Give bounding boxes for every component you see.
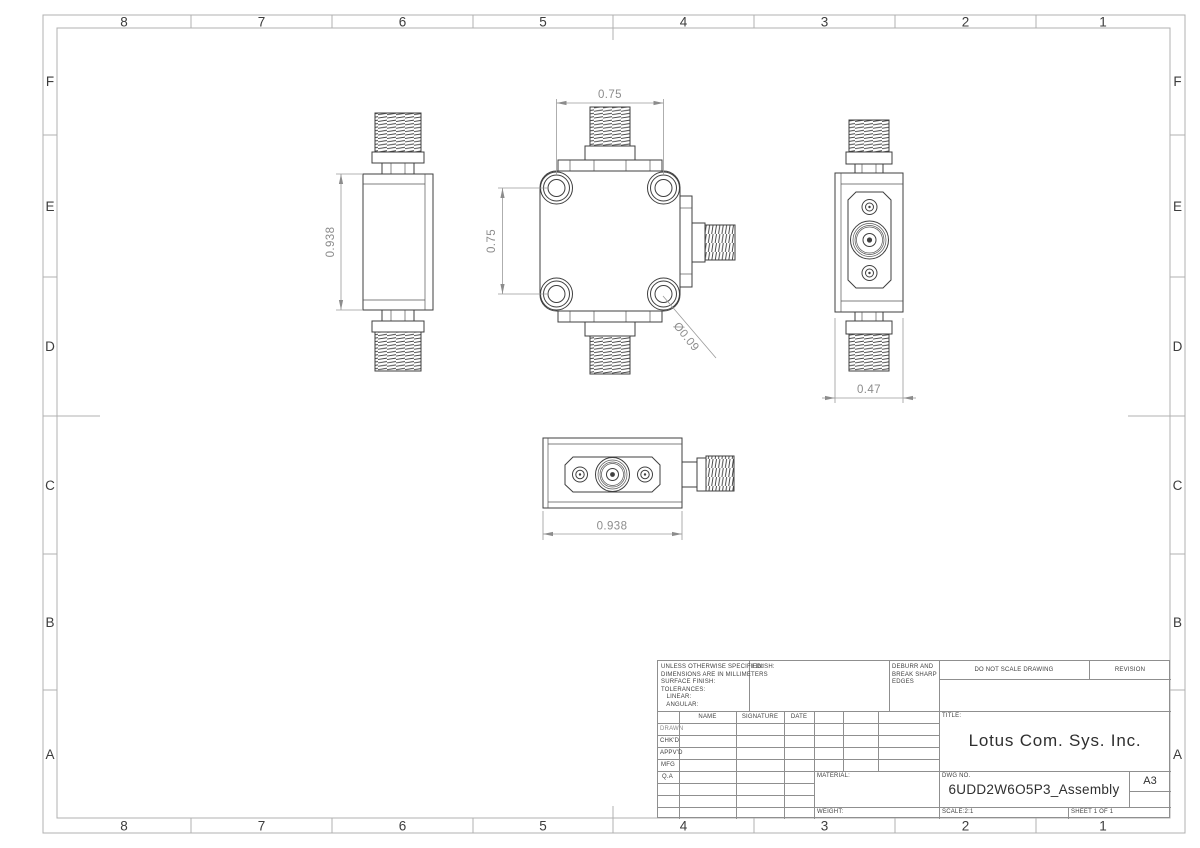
dim-hole-pitch-h-text: 0.75 [598, 89, 622, 101]
grid-row-right-E: E [1173, 199, 1182, 214]
title-block-line [658, 723, 939, 724]
approval-row-drawn: DRAWN [660, 723, 683, 735]
title-block-line [658, 759, 939, 760]
approval-row-appvd: APPV'D [660, 747, 683, 759]
grid-row-left-A: A [45, 747, 54, 762]
dim-body-depth-text: 0.47 [857, 384, 881, 396]
grid-col-bottom-1: 1 [1099, 819, 1107, 834]
dim-hole-pitch-v-text: 0.75 [486, 229, 498, 253]
view-side-right: 0.47 [822, 120, 916, 403]
grid-row-right-F: F [1173, 74, 1181, 89]
dimension-hole-pitch-vertical: 0.75 [486, 188, 548, 294]
engineering-drawing-sheet: 8 7 6 5 4 3 2 1 8 7 6 5 4 3 2 1 F E D C … [0, 0, 1200, 848]
title-block-line [843, 711, 844, 771]
deburr-note: DEBURR AND BREAK SHARP EDGES [892, 664, 937, 687]
signature-column-header: SIGNATURE [736, 711, 784, 723]
revision-label: REVISION [1089, 661, 1171, 679]
title-block-line [878, 711, 879, 771]
title-block-line [736, 711, 737, 819]
paper-size: A3 [1129, 771, 1171, 791]
dimension-side-height: 0.938 [325, 174, 363, 310]
finish-label: FINISH: [752, 664, 775, 672]
approval-row-qa: Q.A [662, 771, 673, 783]
approval-row-mfg: MFG [661, 759, 675, 771]
dimension-bottom-width: 0.938 [543, 511, 682, 540]
dim-side-height-text: 0.938 [325, 227, 337, 258]
grid-row-left-F: F [46, 74, 54, 89]
grid-row-right-D: D [1173, 339, 1183, 354]
view-side-left: 0.938 [325, 113, 433, 371]
grid-col-bottom-2: 2 [962, 819, 970, 834]
grid-col-bottom-6: 6 [399, 819, 407, 834]
title-block-line [658, 735, 939, 736]
grid-col-bottom-8: 8 [120, 819, 128, 834]
title-block-line [658, 747, 939, 748]
grid-row-right-A: A [1173, 747, 1182, 762]
grid-col-bottom-4: 4 [680, 819, 688, 834]
grid-col-top-8: 8 [120, 15, 128, 30]
title-block-line [1068, 807, 1069, 819]
dim-bottom-width-text: 0.938 [597, 521, 628, 533]
grid-col-top-2: 2 [962, 15, 970, 30]
grid-col-top-5: 5 [539, 15, 547, 30]
title-block-line [784, 711, 785, 819]
grid-row-left-B: B [45, 615, 54, 630]
grid-col-top-6: 6 [399, 15, 407, 30]
grid-row-right-C: C [1173, 478, 1183, 493]
grid-col-top-7: 7 [258, 15, 266, 30]
date-column-header: DATE [784, 711, 814, 723]
leader-hole-diameter: Ø0.09 [663, 296, 716, 358]
material-label: MATERIAL: [817, 773, 850, 781]
title-block-line [1129, 791, 1171, 792]
company-name: Lotus Com. Sys. Inc. [939, 711, 1171, 771]
grid-col-top-4: 4 [680, 15, 688, 30]
view-bottom: 0.938 [543, 438, 734, 540]
title-block: UNLESS OTHERWISE SPECIFIED: DIMENSIONS A… [657, 660, 1170, 818]
grid-col-bottom-5: 5 [539, 819, 547, 834]
sheet-label: SHEET 1 OF 1 [1071, 809, 1113, 817]
grid-col-top-3: 3 [821, 15, 829, 30]
view-front: 0.75 0.75 Ø0.09 [486, 89, 735, 374]
title-block-line [889, 661, 890, 711]
grid-row-left-C: C [45, 478, 55, 493]
title-block-line [939, 679, 1171, 680]
grid-col-bottom-3: 3 [821, 819, 829, 834]
scale-label: SCALE:2:1 [942, 809, 973, 817]
drawing-number: 6UDD2W6O5P3_Assembly [939, 771, 1129, 807]
grid-row-left-E: E [45, 199, 54, 214]
do-not-scale-label: DO NOT SCALE DRAWING [939, 661, 1089, 679]
grid-row-right-B: B [1173, 615, 1182, 630]
dim-hole-diameter-text: Ø0.09 [671, 320, 701, 353]
approval-row-chkd: CHK'D [660, 735, 679, 747]
grid-row-left-D: D [45, 339, 55, 354]
name-column-header: NAME [679, 711, 736, 723]
title-block-line [814, 711, 815, 819]
title-block-line [658, 807, 1171, 808]
grid-col-top-1: 1 [1099, 15, 1107, 30]
weight-label: WEIGHT: [817, 809, 843, 817]
grid-col-bottom-7: 7 [258, 819, 266, 834]
